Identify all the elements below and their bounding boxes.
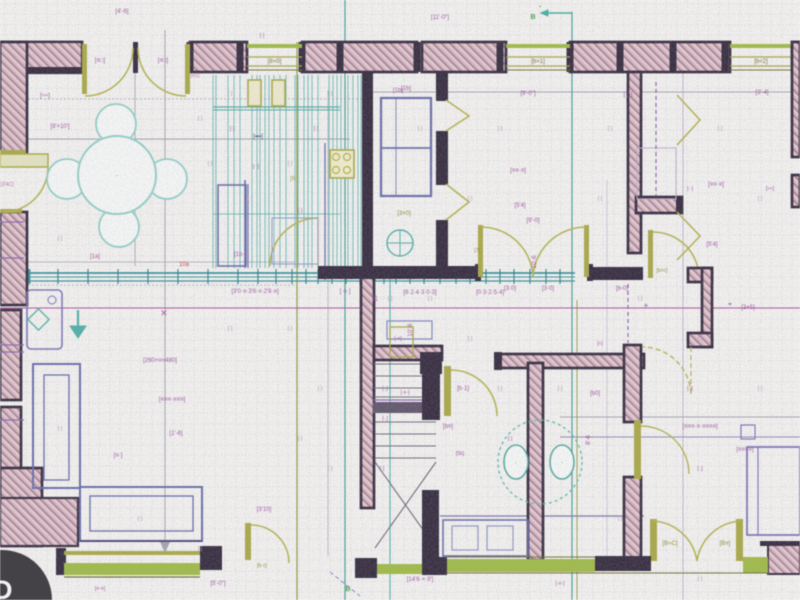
svg-text:[≡□]: [≡□]: [95, 58, 106, 64]
svg-text:[·]: [·]: [498, 386, 503, 392]
svg-text:[≡≡≡≡]: [≡≡≡≡]: [736, 447, 754, 453]
svg-text:[·]: [·]: [698, 336, 703, 342]
svg-text:[b·c]: [b·c]: [257, 563, 267, 569]
svg-text:[b-0]: [b-0]: [616, 286, 628, 292]
svg-text:[·]: [·]: [318, 386, 323, 392]
svg-text:[·]: [·]: [638, 296, 643, 302]
svg-text:·: ·: [116, 171, 119, 180]
svg-text:[··]: [··]: [687, 186, 694, 192]
svg-text:[B≡]: [B≡]: [720, 541, 731, 547]
svg-text:[·]: [·]: [758, 386, 763, 392]
svg-text:10'-6: 10'-6: [532, 255, 538, 269]
svg-text:[3·0]: [3·0]: [542, 286, 554, 292]
svg-text:[·]: [·]: [558, 386, 563, 392]
svg-text:[▪▪▪]: [▪▪▪]: [253, 134, 263, 140]
svg-text:[·¦·]: [·¦·]: [624, 92, 633, 98]
svg-text:D: D: [0, 575, 13, 600]
svg-text:[5b]: [5b]: [456, 451, 465, 457]
svg-text:[·]: [·]: [758, 196, 763, 202]
svg-text:[·]: [·]: [698, 576, 703, 582]
svg-text:[b≡]: [b≡]: [443, 424, 454, 430]
svg-text:[·]: [·]: [428, 296, 433, 302]
svg-text:10a: 10a: [179, 262, 190, 268]
svg-text:[3·0]: [3·0]: [504, 286, 516, 292]
svg-text:[5'-0″]: [5'-0″]: [210, 581, 226, 587]
svg-text:[·]: [·]: [260, 33, 265, 39]
svg-text:[≈]: [≈]: [597, 341, 603, 347]
svg-text:[·]: [·]: [608, 126, 613, 132]
svg-text:✕: ✕: [160, 308, 168, 318]
svg-text:[·]: [·]: [58, 236, 63, 242]
svg-text:[8'×10']: [8'×10']: [50, 124, 69, 130]
svg-text:[≡≡·≡]: [≡≡·≡]: [510, 168, 526, 174]
svg-text:[·≡·]: [·≡·]: [555, 581, 565, 587]
svg-text:[·]: [·]: [468, 196, 473, 202]
svg-text:[·]: [·]: [138, 516, 143, 522]
svg-text:[·‚]: [·‚]: [382, 386, 388, 392]
svg-text:[·]: [·]: [508, 436, 513, 442]
svg-text:[3'-4]: [3'-4]: [755, 90, 768, 96]
svg-text:[·]: [·]: [208, 161, 213, 167]
svg-text:[≡≡·≡]: [≡≡·≡]: [708, 182, 724, 188]
svg-text:[·]: [·]: [228, 326, 233, 332]
svg-text:+: +: [644, 301, 649, 310]
svg-text:[b=2]: [b=2]: [754, 59, 768, 65]
svg-text:[4'-6]: [4'-6]: [115, 9, 128, 15]
svg-text:[·‚]: [·‚]: [382, 416, 388, 422]
svg-text:[·‚]: [·‚]: [697, 466, 703, 472]
svg-text:[b=1]: [b=1]: [531, 59, 545, 65]
svg-text:[·≡·]: [·≡·]: [340, 289, 351, 295]
svg-text:[·]: [·]: [288, 161, 293, 167]
svg-text:[3'10]: [3'10]: [257, 507, 272, 513]
svg-text:[·]: [·]: [618, 516, 623, 522]
svg-text:[·]: [·]: [314, 126, 319, 132]
svg-text:[·]: [·]: [328, 466, 333, 472]
svg-text:[5'4]: [5'4]: [514, 203, 525, 209]
svg-text:B: B: [345, 586, 350, 593]
svg-text:[··]: [··]: [253, 164, 260, 170]
svg-text:[14'6·×·9']: [14'6·×·9']: [407, 577, 434, 583]
svg-text:[·]: [·]: [380, 466, 385, 472]
svg-text:[·]: [·]: [598, 196, 603, 202]
svg-text:[·]: [·]: [288, 326, 293, 332]
svg-text:[11'-0″]: [11'-0″]: [431, 15, 450, 21]
svg-text:[9'-0″]: [9'-0″]: [520, 91, 536, 97]
svg-text:[·]: [·]: [388, 296, 393, 302]
svg-text:[≈≈]: [≈≈]: [40, 93, 50, 99]
svg-text:[B=C]: [B=C]: [662, 541, 678, 547]
svg-text:[·]: [·]: [328, 91, 333, 97]
svg-text:[1a]: [1a]: [90, 254, 100, 260]
svg-text:[·≡]: [·≡]: [394, 336, 402, 342]
svg-text:[≡·≡]: [≡·≡]: [95, 586, 106, 592]
svg-text:[≡≡≡·≡≡≡]: [≡≡≡·≡≡≡]: [159, 397, 186, 403]
svg-text:[3'4C]: [3'4C]: [1, 182, 15, 188]
svg-text:⌖: ⌖: [728, 301, 732, 308]
svg-text:[260×≡×480]: [260×≡×480]: [143, 358, 177, 364]
svg-text:[3×0]: [3×0]: [397, 211, 411, 217]
svg-text:[·]: [·]: [418, 126, 423, 132]
svg-text:[·≡·]: [·≡·]: [400, 390, 410, 396]
svg-text:[≡□]: [≡□]: [158, 58, 169, 64]
svg-text:[·]: [·]: [198, 116, 203, 122]
svg-text:[≈≈]: [≈≈]: [766, 186, 775, 192]
svg-text:[·]: [·]: [248, 196, 253, 202]
svg-text:[·]: [·]: [228, 91, 233, 97]
svg-text:[≡≡≡·≡·≡≡≡≡]: [≡≡≡·≡·≡≡≡≡]: [682, 424, 718, 430]
svg-text:·: ·: [515, 458, 518, 467]
svg-text:10': 10': [373, 294, 379, 302]
svg-text:·: ·: [561, 458, 564, 467]
svg-text:[3+5]: [3+5]: [741, 305, 755, 311]
svg-text:[1b·]: [1b·]: [234, 252, 246, 258]
svg-text:[·]: [·]: [298, 208, 303, 214]
svg-text:[·‚]: [·‚]: [687, 386, 693, 392]
svg-text:[9'-0]: [9'-0]: [526, 218, 539, 224]
svg-text:[5]: [5]: [290, 176, 296, 182]
svg-text:[b=c]: [b=c]: [657, 268, 669, 274]
svg-text:[·]: [·]: [718, 126, 723, 132]
svg-text:[1b]: [1b]: [393, 88, 403, 94]
svg-text:▪: ▪: [539, 4, 541, 10]
svg-text:[·]: [·]: [468, 336, 473, 342]
svg-text:[b0]: [b0]: [590, 391, 600, 397]
svg-text:B: B: [530, 14, 535, 21]
svg-text:[8=0]: [8=0]: [268, 59, 282, 65]
svg-text:[·]: [·]: [498, 126, 503, 132]
svg-text:[≡2]: [≡2]: [191, 73, 200, 79]
svg-text:[≡·]: [≡·]: [114, 453, 123, 459]
svg-text:[5'4]: [5'4]: [706, 242, 717, 248]
svg-text:[·]: [·]: [58, 426, 63, 432]
svg-text:8'-6: 8'-6: [586, 434, 592, 444]
svg-text:[7]: [7]: [474, 248, 480, 254]
svg-text:[0·3·2·5·4]: [0·3·2·5·4]: [476, 290, 504, 296]
svg-text:[3'0·≡·3'6·≡·2'8·≡]: [3'0·≡·3'6·≡·2'8·≡]: [231, 289, 279, 295]
svg-text:[1'-6]: [1'-6]: [169, 431, 182, 437]
svg-text:[b·1]: [b·1]: [457, 386, 469, 392]
svg-text:[·]: [·]: [298, 436, 303, 442]
svg-text:[·]: [·]: [198, 546, 203, 552]
svg-text:[·]: [·]: [230, 126, 235, 132]
